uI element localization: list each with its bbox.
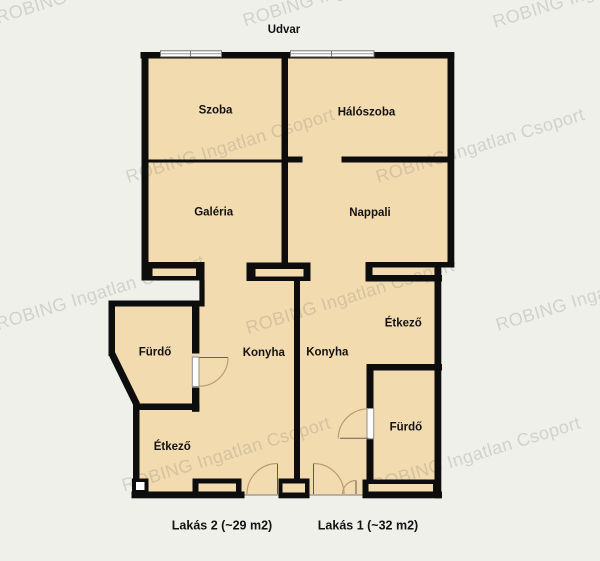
- svg-text:Hálószoba: Hálószoba: [338, 107, 396, 119]
- svg-text:Étkező: Étkező: [154, 440, 191, 453]
- svg-text:Nappali: Nappali: [349, 207, 391, 219]
- svg-text:Étkező: Étkező: [385, 317, 422, 330]
- svg-text:Galéria: Galéria: [194, 207, 234, 219]
- svg-text:Lakás 2 (~29 m2): Lakás 2 (~29 m2): [172, 519, 272, 533]
- svg-text:Konyha: Konyha: [243, 347, 286, 359]
- svg-text:Udvar: Udvar: [268, 24, 301, 36]
- svg-text:Lakás 1 (~32 m2): Lakás 1 (~32 m2): [318, 519, 418, 533]
- svg-text:Fürdő: Fürdő: [139, 347, 172, 359]
- svg-text:Fürdő: Fürdő: [390, 422, 423, 434]
- svg-text:Szoba: Szoba: [199, 105, 233, 117]
- svg-text:Konyha: Konyha: [306, 347, 349, 359]
